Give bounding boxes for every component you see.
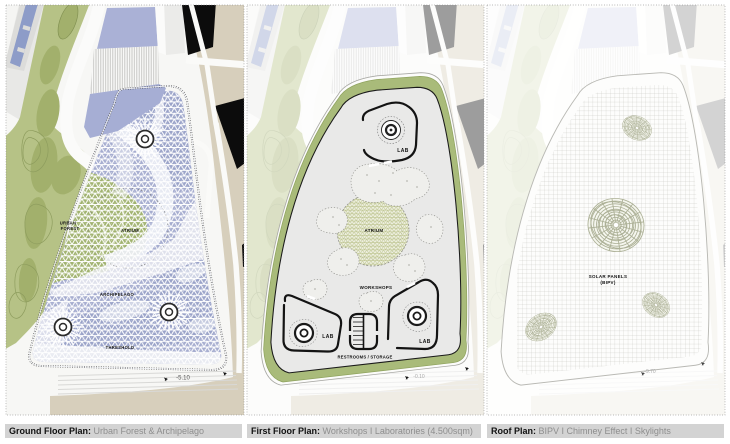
svg-text:-5.10: -5.10 [176, 376, 190, 382]
svg-text:LAB: LAB [322, 334, 333, 340]
svg-text:RESTROOMS / STORAGE: RESTROOMS / STORAGE [338, 355, 393, 360]
svg-text:WORKSHOPS: WORKSHOPS [360, 285, 393, 290]
svg-text:THRESHOLD: THRESHOLD [106, 345, 135, 350]
svg-text:LAB: LAB [397, 148, 408, 154]
svg-text:LAB: LAB [419, 339, 430, 345]
svg-text:-9.70: -9.70 [644, 369, 656, 375]
svg-text:ATRIUM: ATRIUM [121, 228, 139, 233]
svg-text:ARCHIPELAGO: ARCHIPELAGO [100, 292, 135, 297]
svg-text:(BIPV): (BIPV) [600, 280, 616, 285]
svg-text:FOREST: FOREST [61, 226, 80, 231]
svg-text:-0.10: -0.10 [413, 374, 425, 380]
svg-text:URBAN: URBAN [60, 221, 77, 226]
svg-text:SOLAR PANELS: SOLAR PANELS [589, 274, 628, 279]
svg-text:ATRIUM: ATRIUM [365, 228, 384, 233]
